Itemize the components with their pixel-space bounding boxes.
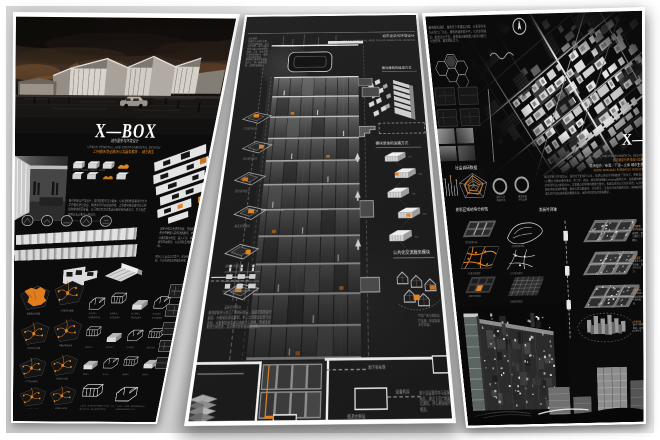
svg-text:固定: 固定: [415, 235, 420, 239]
svg-text:服务模块组合: 服务模块组合: [235, 188, 251, 194]
svg-text:绿化种植模块: 绿化种植模块: [152, 316, 163, 319]
svg-text:绿化系统分析图: 绿化系统分析图: [56, 377, 69, 380]
svg-text:2. 商业舱．沿街布置，底层架空形成灰空间，: 2. 商业舱．沿街布置，底层架空形成灰空间，: [115, 405, 146, 408]
svg-text:吊装: 吊装: [408, 155, 413, 159]
svg-text:悬挑单元: 悬挑单元: [122, 373, 129, 376]
svg-text:设备管井模块: 设备管井模块: [224, 303, 242, 310]
svg-text:视线通廊分析图: 视线通廊分析图: [26, 408, 38, 409]
svg-text:拼接: 拼接: [418, 172, 423, 176]
svg-text:单元模块一: 单元模块一: [89, 311, 98, 314]
svg-text:标准集装箱改造: 标准集装箱改造: [88, 315, 101, 318]
svg-text:置入共享中庭，为创业者提供交流场所。: 置入共享中庭，为创业者提供交流场所。: [79, 408, 107, 411]
svg-text:功能分布分析图: 功能分布分析图: [59, 344, 72, 347]
svg-text:单元模块四: 单元模块四: [152, 312, 161, 315]
svg-text:交通流线分析图: 交通流线分析图: [27, 347, 40, 350]
svg-text:单元模块二: 单元模块二: [110, 312, 119, 315]
svg-text:公共空间分析图: 公共空间分析图: [25, 380, 38, 383]
svg-text:错动单元: 错动单元: [102, 373, 109, 376]
svg-text:组合方式四: 组合方式四: [147, 346, 156, 349]
svg-text:架空单元: 架空单元: [142, 373, 149, 376]
svg-text:组合方式三: 组合方式三: [126, 346, 135, 349]
svg-text:组合方式一: 组合方式一: [85, 345, 94, 348]
svg-text:单元模块三: 单元模块三: [131, 312, 140, 315]
svg-text:商业活力分析图: 商业活力分析图: [27, 312, 41, 315]
svg-text:叠加单元: 叠加单元: [83, 373, 90, 376]
svg-text:双层复合模块: 双层复合模块: [109, 316, 120, 319]
svg-text:上部模块错动形成露台与平台。: 上部模块错动形成露台与平台。: [115, 408, 137, 411]
svg-text:就位: 就位: [423, 212, 428, 216]
svg-text:更新节点分析图: 更新节点分析图: [55, 407, 67, 409]
svg-text:商业模块组合: 商业模块组合: [243, 156, 258, 161]
svg-text:开敞商业模块: 开敞商业模块: [130, 316, 141, 319]
svg-text:人流密度分析图: 人流密度分析图: [60, 309, 74, 312]
svg-text:工作模块组合: 工作模块组合: [243, 126, 257, 131]
svg-text:垂直交通模块: 垂直交通模块: [234, 223, 250, 229]
svg-text:1. 工作舱．模块组合后形成连续的工作空间，中部: 1. 工作舱．模块组合后形成连续的工作空间，中部: [80, 404, 114, 407]
svg-text:组合方式二: 组合方式二: [106, 346, 115, 349]
svg-text:运输: 运输: [412, 192, 417, 196]
